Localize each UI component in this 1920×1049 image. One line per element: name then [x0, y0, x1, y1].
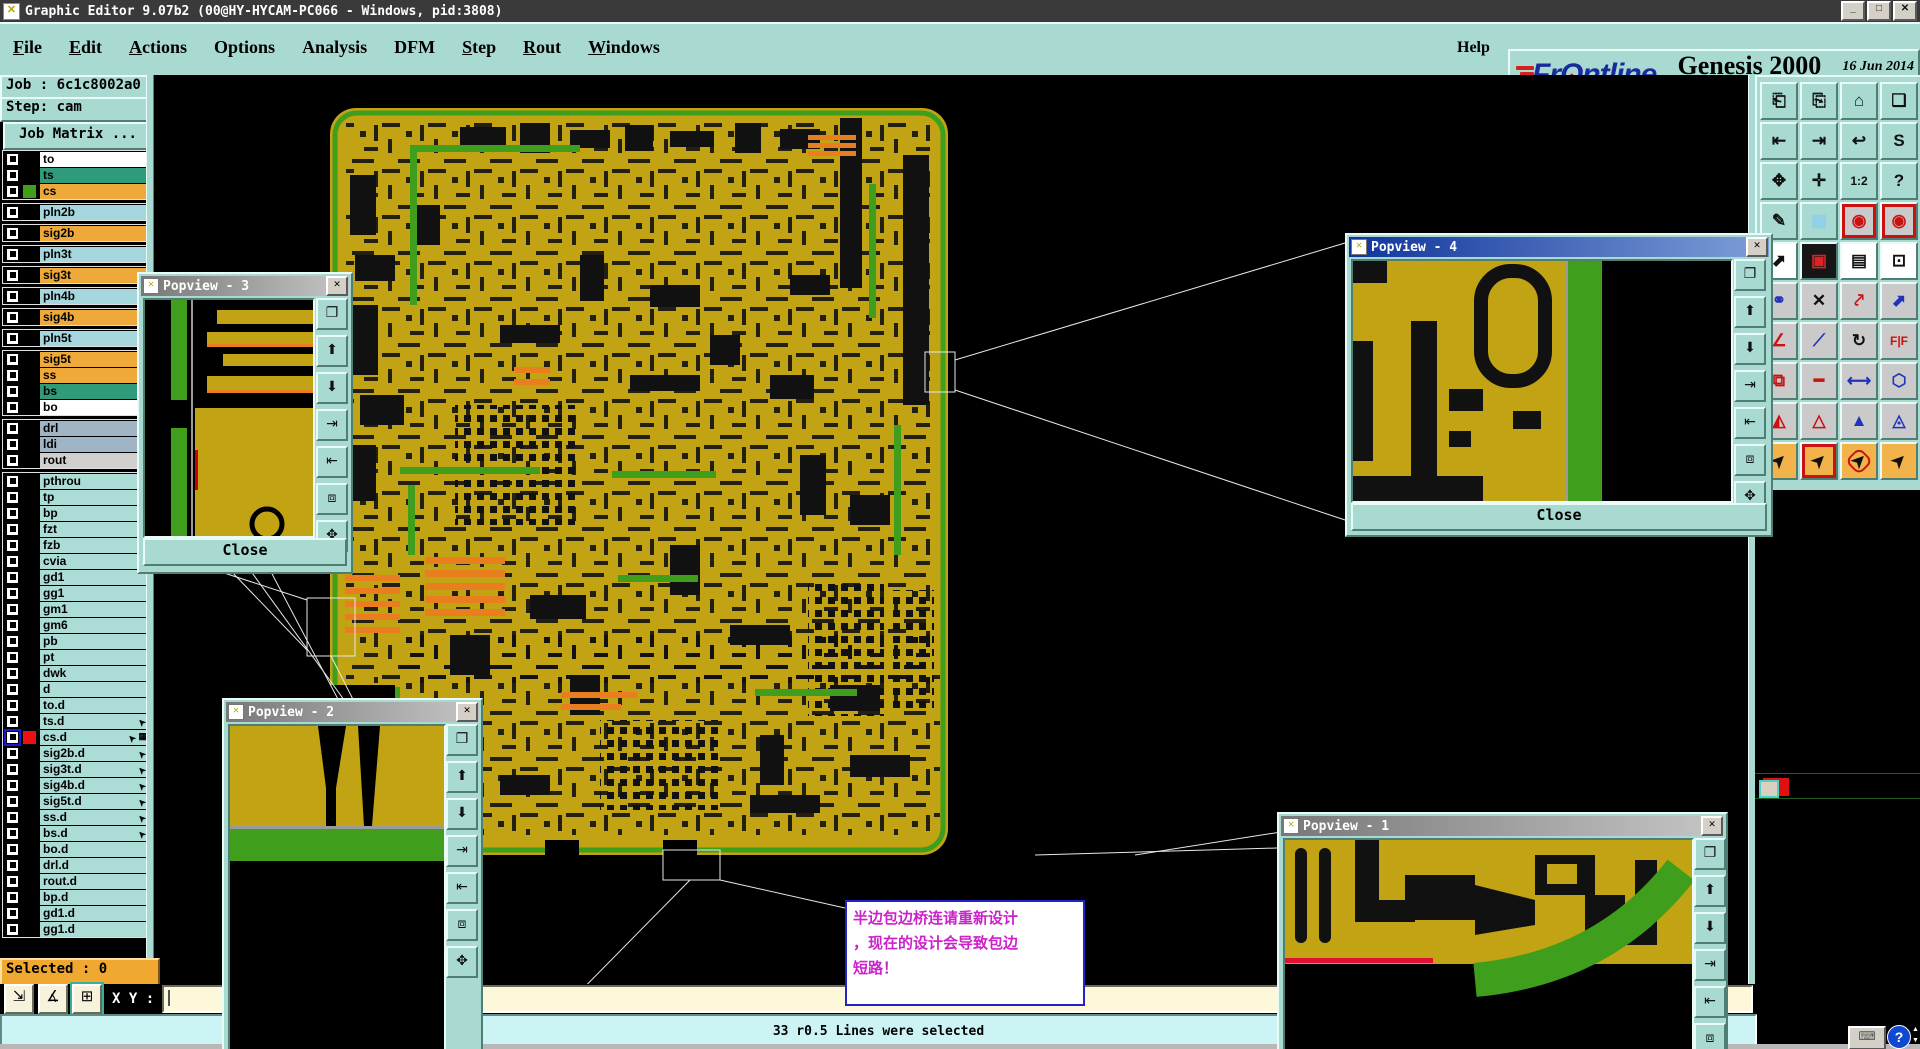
- popview-4-close-icon[interactable]: ✕: [1746, 237, 1768, 257]
- layer-checkbox[interactable]: [6, 875, 19, 888]
- layer-checkbox[interactable]: [6, 269, 19, 282]
- layer-name: bs: [40, 384, 149, 399]
- layer-checkbox[interactable]: [6, 311, 19, 324]
- close-button[interactable]: ✕: [1893, 1, 1917, 21]
- menu-actions[interactable]: Actions: [129, 37, 187, 58]
- layer-row-sig5t.d[interactable]: sig5t.d➤: [3, 793, 149, 809]
- layer-row-ts[interactable]: ts: [3, 167, 149, 183]
- layer-row-cs.d[interactable]: cs.d➤▦: [3, 729, 149, 745]
- slant-line-button[interactable]: ⟋: [1800, 322, 1838, 360]
- popview-1-close-icon[interactable]: ✕: [1701, 816, 1723, 836]
- arc-select-c-button[interactable]: ▲: [1840, 402, 1878, 440]
- layer-checkbox[interactable]: [6, 859, 19, 872]
- layer-color-swatch[interactable]: [23, 603, 36, 616]
- layer-checkbox[interactable]: [6, 539, 19, 552]
- status-text: 33 r0.5 Lines were selected: [773, 1024, 984, 1039]
- pan-out-button[interactable]: ⇤: [1734, 407, 1766, 439]
- layer-name: bo.d: [40, 842, 149, 857]
- layer-row-pln2b[interactable]: pln2b: [3, 204, 149, 220]
- layer-color-swatch[interactable]: [23, 795, 36, 808]
- layer-name: rout: [40, 453, 149, 468]
- layer-row-dwk[interactable]: dwk: [3, 665, 149, 681]
- layer-name: drl: [40, 421, 149, 436]
- layer-row-ss.d[interactable]: ss.d➤: [3, 809, 149, 825]
- layer-color-swatch[interactable]: [23, 907, 36, 920]
- spacing-button[interactable]: ⟷: [1840, 362, 1878, 400]
- layer-color-swatch[interactable]: [23, 311, 36, 324]
- layer-name: bs.d➤: [40, 826, 149, 841]
- layer-color-swatch[interactable]: [23, 731, 36, 744]
- stretch-line-button[interactable]: ━: [1800, 362, 1838, 400]
- layer-checkbox[interactable]: [6, 795, 19, 808]
- layer-row-pln5t[interactable]: pln5t: [3, 330, 149, 346]
- menu-windows[interactable]: Windows: [588, 37, 660, 58]
- layer-checkbox[interactable]: [6, 169, 19, 182]
- push-up-button[interactable]: ⬆: [1734, 296, 1766, 328]
- layer-name: ss.d➤: [40, 810, 149, 825]
- layer-color-swatch[interactable]: [23, 454, 36, 467]
- layer-row-fzt[interactable]: fzt: [3, 521, 149, 537]
- layer-color-swatch[interactable]: [23, 353, 36, 366]
- menu-help[interactable]: Help: [1457, 39, 1490, 57]
- push-down-button[interactable]: ⬇: [1694, 912, 1726, 944]
- layer-checkbox[interactable]: [6, 923, 19, 936]
- menu-edit[interactable]: Edit: [69, 37, 102, 58]
- zoom-fit-view-button[interactable]: ⧈: [316, 483, 348, 515]
- layer-checkbox[interactable]: [6, 475, 19, 488]
- popview-1-window[interactable]: ✕ Popview - 1 ✕ ❐⬆⬇⇥: [1277, 812, 1728, 1049]
- popview-icon: ✕: [143, 278, 159, 294]
- layer-name: cs.d➤▦: [40, 730, 149, 745]
- layer-color-swatch[interactable]: [23, 185, 36, 198]
- popview-3-close-button[interactable]: Close: [143, 538, 347, 566]
- layer-name: ts: [40, 168, 149, 183]
- serpentine-route-button[interactable]: S: [1880, 122, 1918, 160]
- home-view-button[interactable]: ⌂: [1840, 82, 1878, 120]
- layer-row-pb[interactable]: pb: [3, 633, 149, 649]
- layer-color-swatch[interactable]: [23, 891, 36, 904]
- layer-row-drl.d[interactable]: drl.d: [3, 857, 149, 873]
- popview-1-buttons: ❐⬆⬇⇥⇤⧈✥: [1694, 838, 1726, 1049]
- layer-row-cvia[interactable]: cvia: [3, 553, 149, 569]
- popview-3-title: Popview - 3: [163, 279, 249, 294]
- layer-checkbox[interactable]: [6, 353, 19, 366]
- push-down-button[interactable]: ⬇: [446, 798, 478, 830]
- layer-color-swatch[interactable]: [23, 539, 36, 552]
- layer-name: bo: [40, 400, 149, 415]
- layer-name: tp: [40, 490, 149, 505]
- undo-view-button[interactable]: ↩: [1840, 122, 1878, 160]
- scroll-arrows-icon[interactable]: ▲▼: [1911, 1024, 1920, 1048]
- layer-checkbox[interactable]: [6, 747, 19, 760]
- layer-checkbox[interactable]: [6, 454, 19, 467]
- layer-name: pthrou: [40, 474, 149, 489]
- push-down-button[interactable]: ⬇: [1734, 333, 1766, 365]
- layer-color-swatch[interactable]: [23, 475, 36, 488]
- layer-row-bp.d[interactable]: bp.d: [3, 889, 149, 905]
- layer-checkbox[interactable]: [6, 811, 19, 824]
- pan-left-button[interactable]: ⇤: [1760, 122, 1798, 160]
- layer-color-swatch[interactable]: [23, 248, 36, 261]
- layer-color-swatch[interactable]: [23, 153, 36, 166]
- mirror-button[interactable]: F|F: [1880, 322, 1918, 360]
- design-annotation: 半边包边桥连请重新设计 ，现在的设计会导致包边 短路！: [845, 900, 1085, 1006]
- menu-file[interactable]: File: [13, 37, 42, 58]
- copy-button[interactable]: ⤤: [1840, 282, 1878, 320]
- right-toolbar: ⎗⎘⌂❏⇤⇥↩S✥✛1:2?✎▦◉◉⬈▣▤⊡⚭✕⤤⬈∠⟋↻F|F⧉━⟷⬡◭△▲◬…: [1755, 75, 1920, 494]
- layer-checkbox[interactable]: [6, 369, 19, 382]
- layer-checkbox[interactable]: [6, 651, 19, 664]
- layer-name: ts.d➤: [40, 714, 149, 729]
- layer-checkbox[interactable]: [6, 555, 19, 568]
- layer-color-swatch[interactable]: [23, 369, 36, 382]
- layer-color-swatch[interactable]: [23, 667, 36, 680]
- layer-checkbox[interactable]: [6, 523, 19, 536]
- layer-row-gd1.d[interactable]: gd1.d: [3, 905, 149, 921]
- popview-3-view[interactable]: [143, 298, 315, 538]
- move-button[interactable]: ⬈: [1880, 282, 1918, 320]
- layer-color-swatch[interactable]: [23, 699, 36, 712]
- pan-out-button[interactable]: ⇤: [1694, 986, 1726, 1018]
- layer-color-swatch[interactable]: [23, 811, 36, 824]
- popview-3-buttons: ❐⬆⬇⇥⇤⧈✥: [316, 298, 348, 552]
- layer-checkbox[interactable]: [6, 290, 19, 303]
- display-profile-a-button[interactable]: ◉: [1840, 202, 1878, 240]
- popview-4-buttons: ❐⬆⬇⇥⇤⧈✥: [1734, 259, 1766, 513]
- select-poly-button[interactable]: ➤: [1840, 442, 1878, 480]
- popview-4-view[interactable]: [1351, 259, 1733, 503]
- layer-row-tp[interactable]: tp: [3, 489, 149, 505]
- help-bubble-icon[interactable]: ?: [1887, 1025, 1911, 1049]
- layer-checkbox[interactable]: [6, 635, 19, 648]
- layer-row-pln4b[interactable]: pln4b: [3, 288, 149, 304]
- layer-name: gm1: [40, 602, 149, 617]
- layer-row-bs[interactable]: bs: [3, 383, 149, 399]
- popview-4-title: Popview - 4: [1371, 240, 1457, 255]
- layer-name: pt: [40, 650, 149, 665]
- grid-toggle-button[interactable]: ▦: [1800, 202, 1838, 240]
- layer-row-cs[interactable]: cs: [3, 183, 149, 199]
- pan-into-button[interactable]: ⇥: [446, 835, 478, 867]
- popview-2-title: Popview - 2: [248, 705, 334, 720]
- menu-options[interactable]: Options: [214, 37, 275, 58]
- layer-name: sig2b.d➤: [40, 746, 149, 761]
- layer-checkbox[interactable]: [6, 763, 19, 776]
- layer-checkbox[interactable]: [6, 401, 19, 414]
- layer-row-sig3t.d[interactable]: sig3t.d➤: [3, 761, 149, 777]
- maximize-button[interactable]: □: [1867, 1, 1891, 21]
- layer-row-sig4b[interactable]: sig4b: [3, 309, 149, 325]
- layer-color-swatch[interactable]: [23, 875, 36, 888]
- layer-name: pln2b: [40, 205, 149, 220]
- layer-checkbox[interactable]: [6, 248, 19, 261]
- menu-analysis[interactable]: Analysis: [302, 37, 367, 58]
- layer-color-swatch[interactable]: [23, 859, 36, 872]
- keyboard-icon[interactable]: ⌨: [1848, 1026, 1886, 1049]
- layer-checkbox[interactable]: [6, 227, 19, 240]
- push-up-button[interactable]: ⬆: [316, 335, 348, 367]
- layer-name: fzb: [40, 538, 149, 553]
- layer-row-ss[interactable]: ss: [3, 367, 149, 383]
- zoom-pan-view-button[interactable]: ✥: [446, 946, 478, 978]
- layer-checkbox[interactable]: [6, 603, 19, 616]
- layer-row-ldi[interactable]: ldi: [3, 436, 149, 452]
- layer-name: gm6: [40, 618, 149, 633]
- layer-name: gg1.d: [40, 922, 149, 937]
- layer-color-swatch[interactable]: [23, 169, 36, 182]
- popview-icon: ✕: [228, 704, 244, 720]
- layer-row-gd1[interactable]: gd1: [3, 569, 149, 585]
- layer-color-swatch[interactable]: [23, 571, 36, 584]
- layer-checkbox[interactable]: [6, 667, 19, 680]
- layer-checkbox[interactable]: [6, 827, 19, 840]
- layer-color-swatch[interactable]: [23, 747, 36, 760]
- layer-color-swatch[interactable]: [23, 763, 36, 776]
- layer-checkbox[interactable]: [6, 185, 19, 198]
- layer-color-swatch[interactable]: [23, 332, 36, 345]
- layer-name: sig4b.d➤: [40, 778, 149, 793]
- layer-color-swatch[interactable]: [23, 206, 36, 219]
- layer-row-d[interactable]: d: [3, 681, 149, 697]
- layer-row-sig3t[interactable]: sig3t: [3, 267, 149, 283]
- zoom-ratio-button[interactable]: 1:2: [1840, 162, 1878, 200]
- layer-name: cvia: [40, 554, 149, 569]
- layer-name: drl.d: [40, 858, 149, 873]
- layer-row-pt[interactable]: pt: [3, 649, 149, 665]
- popview-4-titlebar[interactable]: ✕ Popview - 4 ✕: [1349, 237, 1769, 257]
- layer-name: sig2b: [40, 226, 149, 241]
- popview-2-buttons: ❐⬆⬇⇥⇤⧈✥: [446, 724, 478, 978]
- layer-name: bp.d: [40, 890, 149, 905]
- layer-color-swatch[interactable]: [23, 555, 36, 568]
- layer-row-bp[interactable]: bp: [3, 505, 149, 521]
- pan-into-button[interactable]: ⇥: [316, 409, 348, 441]
- menu-step[interactable]: Step: [462, 37, 496, 58]
- layer-checkbox[interactable]: [6, 422, 19, 435]
- layer-color-swatch[interactable]: [23, 438, 36, 451]
- layer-row-sig4b.d[interactable]: sig4b.d➤: [3, 777, 149, 793]
- navigator-selection[interactable]: [1759, 780, 1779, 798]
- layer-name: pln3t: [40, 247, 149, 262]
- push-up-button[interactable]: ⬆: [1694, 875, 1726, 907]
- layer-row-sig2b.d[interactable]: sig2b.d➤: [3, 745, 149, 761]
- navigator-area[interactable]: X = 7.152788" Y = 6.828887" Inch: [1755, 490, 1920, 935]
- popview-4-close-button[interactable]: Close: [1351, 503, 1767, 531]
- layer-name: sig4b: [40, 310, 149, 325]
- layer-row-sig5t[interactable]: sig5t: [3, 351, 149, 367]
- layer-row-bo.d[interactable]: bo.d: [3, 841, 149, 857]
- layer-color-swatch[interactable]: [23, 227, 36, 240]
- layer-checkbox[interactable]: [6, 891, 19, 904]
- popview-1-view[interactable]: [1283, 838, 1694, 1049]
- layer-color-swatch[interactable]: [23, 923, 36, 936]
- layer-row-bo[interactable]: bo: [3, 399, 149, 415]
- selected-count-label: Selected : 0: [0, 958, 160, 986]
- layer-name: sig3t.d➤: [40, 762, 149, 777]
- layer-row-pln3t[interactable]: pln3t: [3, 246, 149, 262]
- popview-2-titlebar[interactable]: ✕ Popview - 2 ✕: [226, 702, 479, 722]
- layer-checkbox[interactable]: [6, 715, 19, 728]
- layer-checkbox[interactable]: [6, 571, 19, 584]
- layer-row-gm6[interactable]: gm6: [3, 617, 149, 633]
- merge-shapes-button[interactable]: ⬡: [1880, 362, 1918, 400]
- popview-1-title: Popview - 1: [1303, 819, 1389, 834]
- layer-color-swatch[interactable]: [23, 715, 36, 728]
- select-dashed-button[interactable]: ⊡: [1880, 242, 1918, 280]
- layer-row-to.d[interactable]: to.d: [3, 697, 149, 713]
- layer-name: sig5t: [40, 352, 149, 367]
- layer-checkbox[interactable]: [6, 438, 19, 451]
- popview-3-titlebar[interactable]: ✕ Popview - 3 ✕: [141, 276, 349, 296]
- layer-row-rout.d[interactable]: rout.d: [3, 873, 149, 889]
- layer-name: sig3t: [40, 268, 149, 283]
- pan-out-button[interactable]: ⇤: [446, 872, 478, 904]
- popview-2-close-icon[interactable]: ✕: [456, 702, 478, 722]
- layer-name: ldi: [40, 437, 149, 452]
- job-matrix-button[interactable]: Job Matrix ...: [3, 122, 153, 150]
- layer-name: pln5t: [40, 331, 149, 346]
- select-chain-button[interactable]: ➤: [1880, 442, 1918, 480]
- layer-name: bp: [40, 506, 149, 521]
- toolbar-grid: ⎗⎘⌂❏⇤⇥↩S✥✛1:2?✎▦◉◉⬈▣▤⊡⚭✕⤤⬈∠⟋↻F|F⧉━⟷⬡◭△▲◬…: [1760, 82, 1918, 480]
- snap-diagonal-button[interactable]: ⇲: [4, 984, 34, 1014]
- layer-color-swatch[interactable]: [23, 843, 36, 856]
- layer-row-sig2b[interactable]: sig2b: [3, 225, 149, 241]
- grid-window-button[interactable]: ⊞: [72, 984, 102, 1014]
- layer-name: gd1.d: [40, 906, 149, 921]
- select-rect-button[interactable]: ➤: [1800, 442, 1838, 480]
- layer-checkbox[interactable]: [6, 507, 19, 520]
- arc-select-b-button[interactable]: △: [1800, 402, 1838, 440]
- layer-checkbox[interactable]: [6, 731, 19, 744]
- layer-color-swatch[interactable]: [23, 635, 36, 648]
- right-panel: ⎗⎘⌂❏⇤⇥↩S✥✛1:2?✎▦◉◉⬈▣▤⊡⚭✕⤤⬈∠⟋↻F|F⧉━⟷⬡◭△▲◬…: [1755, 75, 1920, 1014]
- application-window: ✕ Graphic Editor 9.07b2 (00@HY-HYCAM-PC0…: [0, 0, 1920, 1049]
- layer-row-gg1.d[interactable]: gg1.d: [3, 921, 149, 937]
- zoom-fit-view-button[interactable]: ⧈: [446, 909, 478, 941]
- context-help-button[interactable]: ?: [1880, 162, 1918, 200]
- layer-name: ss: [40, 368, 149, 383]
- layer-row-to[interactable]: to: [3, 151, 149, 167]
- layer-color-swatch[interactable]: [23, 827, 36, 840]
- delete-button[interactable]: ✕: [1800, 282, 1838, 320]
- layer-color-swatch[interactable]: [23, 401, 36, 414]
- detach-view-button[interactable]: ❐: [1694, 838, 1726, 870]
- layer-row-rout[interactable]: rout: [3, 452, 149, 468]
- layer-color-swatch[interactable]: [23, 385, 36, 398]
- layer-color-swatch[interactable]: [23, 290, 36, 303]
- layer-color-swatch[interactable]: [23, 587, 36, 600]
- layer-color-swatch[interactable]: [23, 269, 36, 282]
- layer-color-swatch[interactable]: [23, 422, 36, 435]
- layer-checkbox[interactable]: [6, 907, 19, 920]
- window-title: Graphic Editor 9.07b2 (00@HY-HYCAM-PC066…: [25, 4, 502, 19]
- popview-1-titlebar[interactable]: ✕ Popview - 1 ✕: [1281, 816, 1724, 836]
- layer-color-swatch[interactable]: [23, 779, 36, 792]
- zoom-center-button[interactable]: ✛: [1800, 162, 1838, 200]
- display-profile-b-button[interactable]: ◉: [1880, 202, 1918, 240]
- window-xy-button[interactable]: ❏: [1880, 82, 1918, 120]
- pan-right-button[interactable]: ⇥: [1800, 122, 1838, 160]
- layer-row-ts.d[interactable]: ts.d➤: [3, 713, 149, 729]
- layer-checkbox[interactable]: [6, 683, 19, 696]
- layer-row-gg1[interactable]: gg1: [3, 585, 149, 601]
- layer-name: fzt: [40, 522, 149, 537]
- layer-checkbox[interactable]: [6, 699, 19, 712]
- layer-checkbox[interactable]: [6, 332, 19, 345]
- layer-row-fzb[interactable]: fzb: [3, 537, 149, 553]
- view-prev-button[interactable]: ⎗: [1760, 82, 1798, 120]
- layer-checkbox[interactable]: [6, 779, 19, 792]
- rotate-button[interactable]: ↻: [1840, 322, 1878, 360]
- view-next-button[interactable]: ⎘: [1800, 82, 1838, 120]
- xy-label: X Y :: [112, 991, 154, 1007]
- popview-2-view[interactable]: [228, 724, 446, 1049]
- arc-select-d-button[interactable]: ◬: [1880, 402, 1918, 440]
- layer-name: gd1: [40, 570, 149, 585]
- window-titlebar: ✕ Graphic Editor 9.07b2 (00@HY-HYCAM-PC0…: [0, 0, 1920, 22]
- select-frame-button[interactable]: ▣: [1800, 242, 1838, 280]
- layer-color-swatch[interactable]: [23, 683, 36, 696]
- detach-view-button[interactable]: ❐: [446, 724, 478, 756]
- layer-color-swatch[interactable]: [23, 523, 36, 536]
- zoom-fit-view-button[interactable]: ⧈: [1734, 444, 1766, 476]
- minimize-button[interactable]: _: [1841, 1, 1865, 21]
- layer-checkbox[interactable]: [6, 385, 19, 398]
- detach-view-button[interactable]: ❐: [1734, 259, 1766, 291]
- popview-3-window[interactable]: ✕ Popview - 3 ✕ ❐⬆⬇⇥⇤⧈✥ Close: [137, 272, 353, 574]
- layer-color-swatch[interactable]: [23, 651, 36, 664]
- layer-name: pb: [40, 634, 149, 649]
- layer-checkbox[interactable]: [6, 843, 19, 856]
- zoom-fit-view-button[interactable]: ⧈: [1694, 1023, 1726, 1049]
- layer-color-swatch[interactable]: [23, 507, 36, 520]
- layer-checkbox[interactable]: [6, 587, 19, 600]
- layer-name: sig5t.d➤: [40, 794, 149, 809]
- pan-out-button[interactable]: ⇤: [316, 446, 348, 478]
- layer-row-pthrou[interactable]: pthrou: [3, 473, 149, 489]
- layer-checkbox[interactable]: [6, 491, 19, 504]
- zoom-fit-button[interactable]: ✥: [1760, 162, 1798, 200]
- layer-name: to.d: [40, 698, 149, 713]
- layer-checkbox[interactable]: [6, 206, 19, 219]
- detach-view-button[interactable]: ❐: [316, 298, 348, 330]
- layer-row-gm1[interactable]: gm1: [3, 601, 149, 617]
- menu-bar: FileEditActionsOptionsAnalysisDFMStepRou…: [0, 22, 1920, 79]
- menu-rout[interactable]: Rout: [523, 37, 561, 58]
- pan-into-button[interactable]: ⇥: [1734, 370, 1766, 402]
- layer-list: totscspln2bsig2bpln3tsig3tpln4bsig4bpln5…: [2, 150, 150, 956]
- measure-ruler-button[interactable]: ▤: [1840, 242, 1878, 280]
- layer-checkbox[interactable]: [6, 153, 19, 166]
- layer-color-swatch[interactable]: [23, 491, 36, 504]
- layer-name: pln4b: [40, 289, 149, 304]
- popview-3-close-icon[interactable]: ✕: [326, 276, 348, 296]
- angle-measure-button[interactable]: ∡: [38, 984, 68, 1014]
- layer-name: d: [40, 682, 149, 697]
- push-up-button[interactable]: ⬆: [446, 761, 478, 793]
- layer-name: gg1: [40, 586, 149, 601]
- popview-2-window[interactable]: ✕ Popview - 2 ✕ ❐⬆⬇⇥⇤⧈✥: [222, 698, 483, 1049]
- menu-dfm[interactable]: DFM: [394, 37, 435, 58]
- layer-row-drl[interactable]: drl: [3, 420, 149, 436]
- layer-row-bs.d[interactable]: bs.d➤: [3, 825, 149, 841]
- push-down-button[interactable]: ⬇: [316, 372, 348, 404]
- layer-checkbox[interactable]: [6, 619, 19, 632]
- popview-4-window[interactable]: ✕ Popview - 4 ✕ ❐⬆⬇⇥⇤⧈✥ Close: [1345, 233, 1773, 537]
- layer-color-swatch[interactable]: [23, 619, 36, 632]
- pan-into-button[interactable]: ⇥: [1694, 949, 1726, 981]
